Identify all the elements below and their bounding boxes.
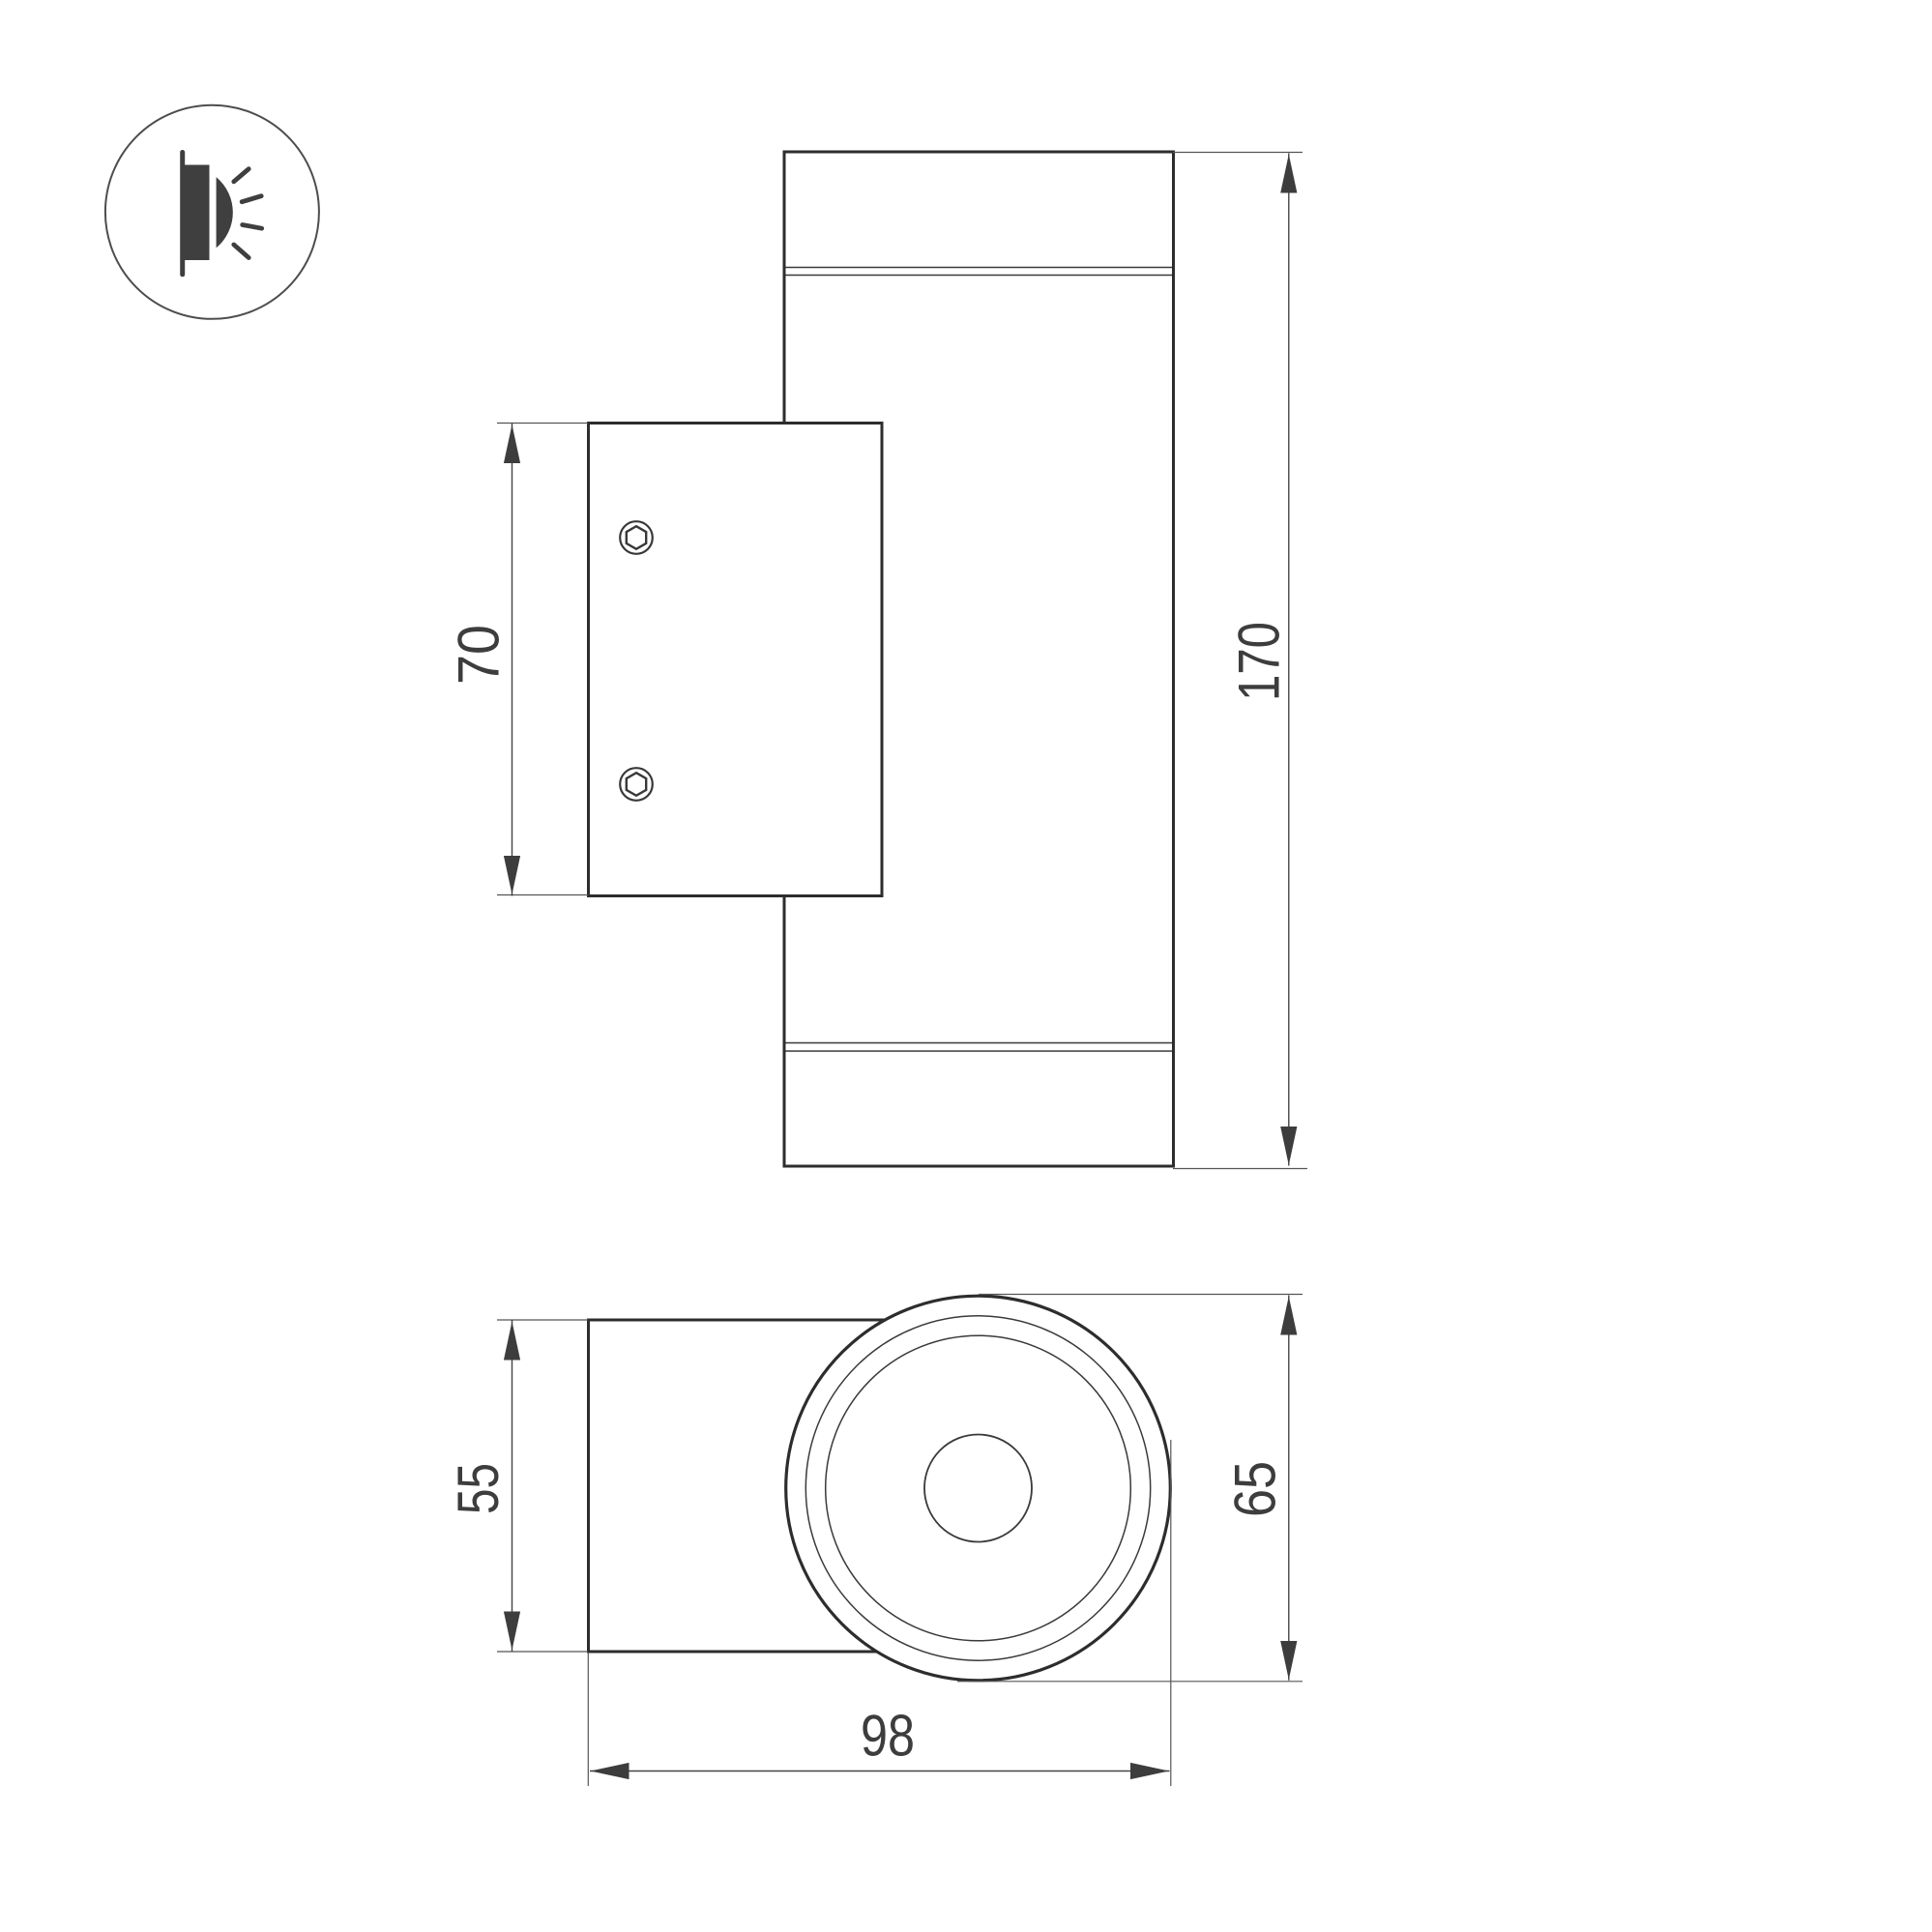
svg-text:65: 65 xyxy=(1223,1461,1288,1517)
svg-text:55: 55 xyxy=(446,1463,511,1514)
svg-text:170: 170 xyxy=(1227,622,1292,701)
svg-text:98: 98 xyxy=(861,1704,915,1769)
svg-text:70: 70 xyxy=(447,625,512,685)
